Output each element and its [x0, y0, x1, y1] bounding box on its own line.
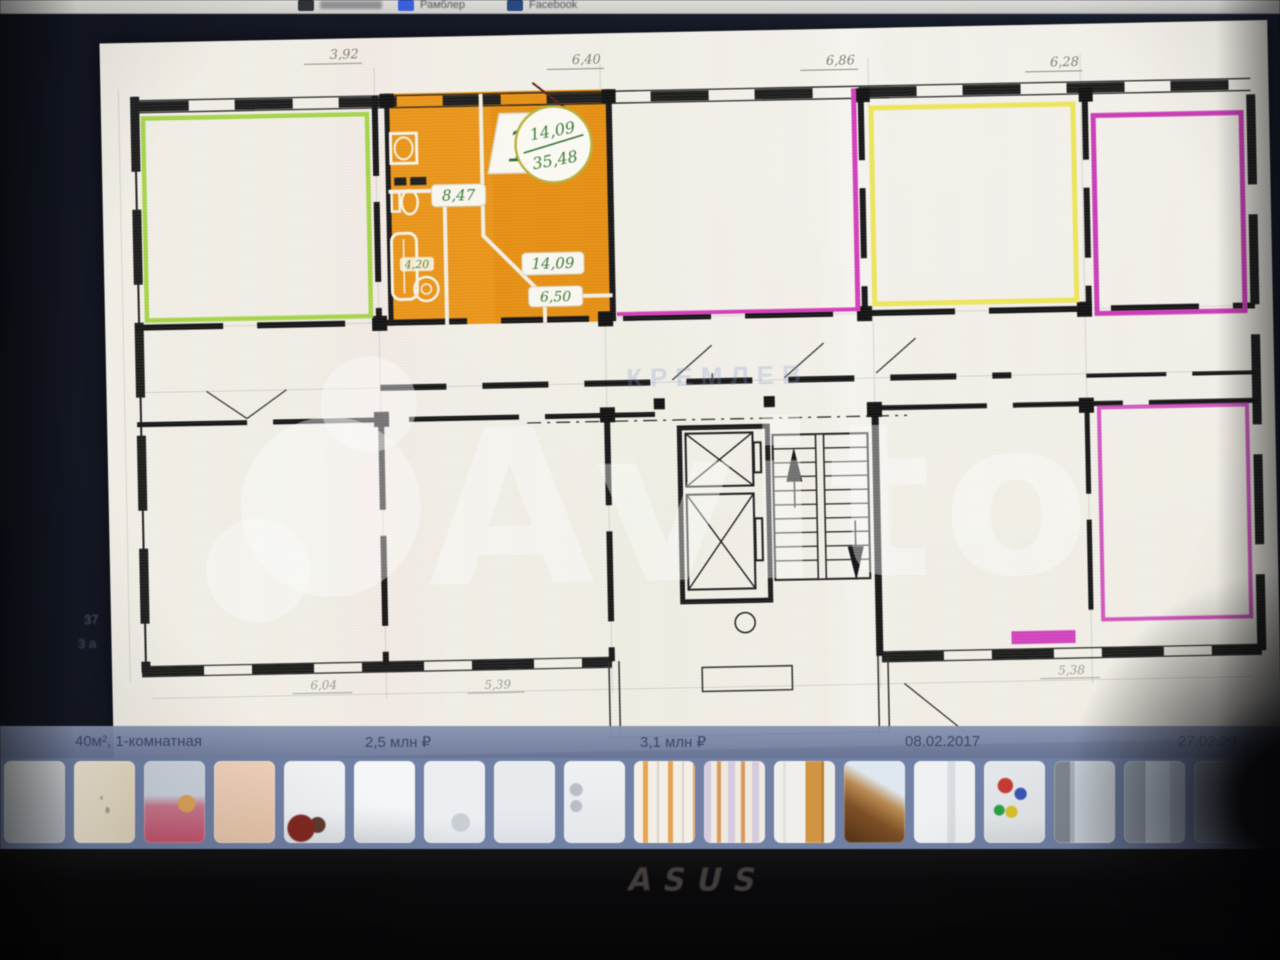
- laptop-bezel: ASUS: [0, 849, 1280, 960]
- svg-text:6,86: 6,86: [826, 53, 855, 69]
- listing-date-2: 27.02.20: [1178, 733, 1236, 750]
- bookmark-label: Facebook: [529, 0, 577, 11]
- svg-text:5,38: 5,38: [1058, 663, 1085, 678]
- floor-plan-photo[interactable]: 1 14,09 35,48 8,47 14,09 6,50 4,20: [99, 20, 1280, 761]
- browser-bookmarks-bar: Рамблер Facebook: [0, 0, 1280, 14]
- svg-text:Avito: Avito: [424, 372, 1102, 636]
- listing-date-1: 08.02.2017: [905, 733, 980, 750]
- svg-text:5,39: 5,39: [484, 677, 511, 692]
- thumbnail-strip: [0, 758, 1280, 849]
- svg-text:8,47: 8,47: [442, 186, 476, 205]
- thumbnail-door-stripes[interactable]: [634, 761, 695, 843]
- listing-price-1: 2,5 млн ₽: [365, 733, 431, 751]
- thumbnail-bathroom[interactable]: [564, 761, 625, 843]
- thumbnail-white-room[interactable]: [354, 761, 415, 843]
- floor-plan-svg: 1 14,09 35,48 8,47 14,09 6,50 4,20: [99, 20, 1280, 755]
- rambler-icon: [398, 0, 414, 11]
- svg-text:6,40: 6,40: [572, 52, 601, 68]
- bookmark-item-facebook[interactable]: Facebook: [507, 0, 577, 13]
- thumbnail-kitchen-corner[interactable]: [424, 761, 485, 843]
- thumbnail-balcony-wood[interactable]: [844, 761, 905, 843]
- listing-price-2: 3,1 млн ₽: [640, 733, 706, 751]
- svg-text:14,09: 14,09: [531, 254, 575, 273]
- gallery-viewer: 37 3 а: [0, 14, 1280, 726]
- unit-badge: 1 14,09 35,48: [487, 106, 593, 184]
- thumbnail-white-hallway[interactable]: [914, 761, 975, 843]
- svg-text:6,04: 6,04: [310, 678, 337, 693]
- laptop-screen-photo: Рамблер Facebook 37 3 а: [0, 0, 1280, 960]
- asus-logo: ASUS: [594, 862, 802, 899]
- margin-note: 3 а: [78, 636, 97, 652]
- avito-watermark: Avito: [202, 342, 1103, 641]
- bookmark-item-rambler[interactable]: Рамблер: [398, 0, 465, 13]
- thumbnail-playground[interactable]: [984, 761, 1045, 843]
- margin-note: 37: [84, 612, 99, 627]
- thumbnail-wood-door[interactable]: [774, 761, 835, 843]
- app-grid-icon: [298, 0, 314, 11]
- thumbnail-stripes-lilac[interactable]: [704, 761, 765, 843]
- svg-text:6,50: 6,50: [540, 289, 572, 306]
- listing-title: 40м², 1-комнатная: [75, 733, 202, 750]
- svg-text:3,92: 3,92: [330, 47, 359, 63]
- bookmark-item[interactable]: [298, 0, 382, 13]
- thumbnail-edge-dark[interactable]: [1194, 761, 1255, 843]
- thumbnail-winter-street[interactable]: [1054, 761, 1115, 843]
- thumbnail-plan-sketch[interactable]: [74, 761, 135, 843]
- thumbnail-floor-plan-gray[interactable]: [4, 761, 65, 843]
- svg-text:4,20: 4,20: [404, 258, 430, 272]
- thumbnail-peach-wall[interactable]: [214, 761, 275, 843]
- thumbnail-room-red-chair[interactable]: [284, 761, 345, 843]
- svg-text:6,28: 6,28: [1050, 55, 1079, 71]
- thumbnail-bedroom-pink[interactable]: [144, 761, 205, 843]
- listing-info-bar: 40м², 1-комнатная 2,5 млн ₽ 3,1 млн ₽ 08…: [0, 726, 1280, 758]
- bookmark-label: Рамблер: [420, 0, 465, 11]
- facebook-icon: [507, 0, 523, 11]
- thumbnail-street-building[interactable]: [1124, 761, 1185, 843]
- thumbnail-pale-room[interactable]: [494, 761, 555, 843]
- bookmark-label-blurred: [320, 1, 382, 9]
